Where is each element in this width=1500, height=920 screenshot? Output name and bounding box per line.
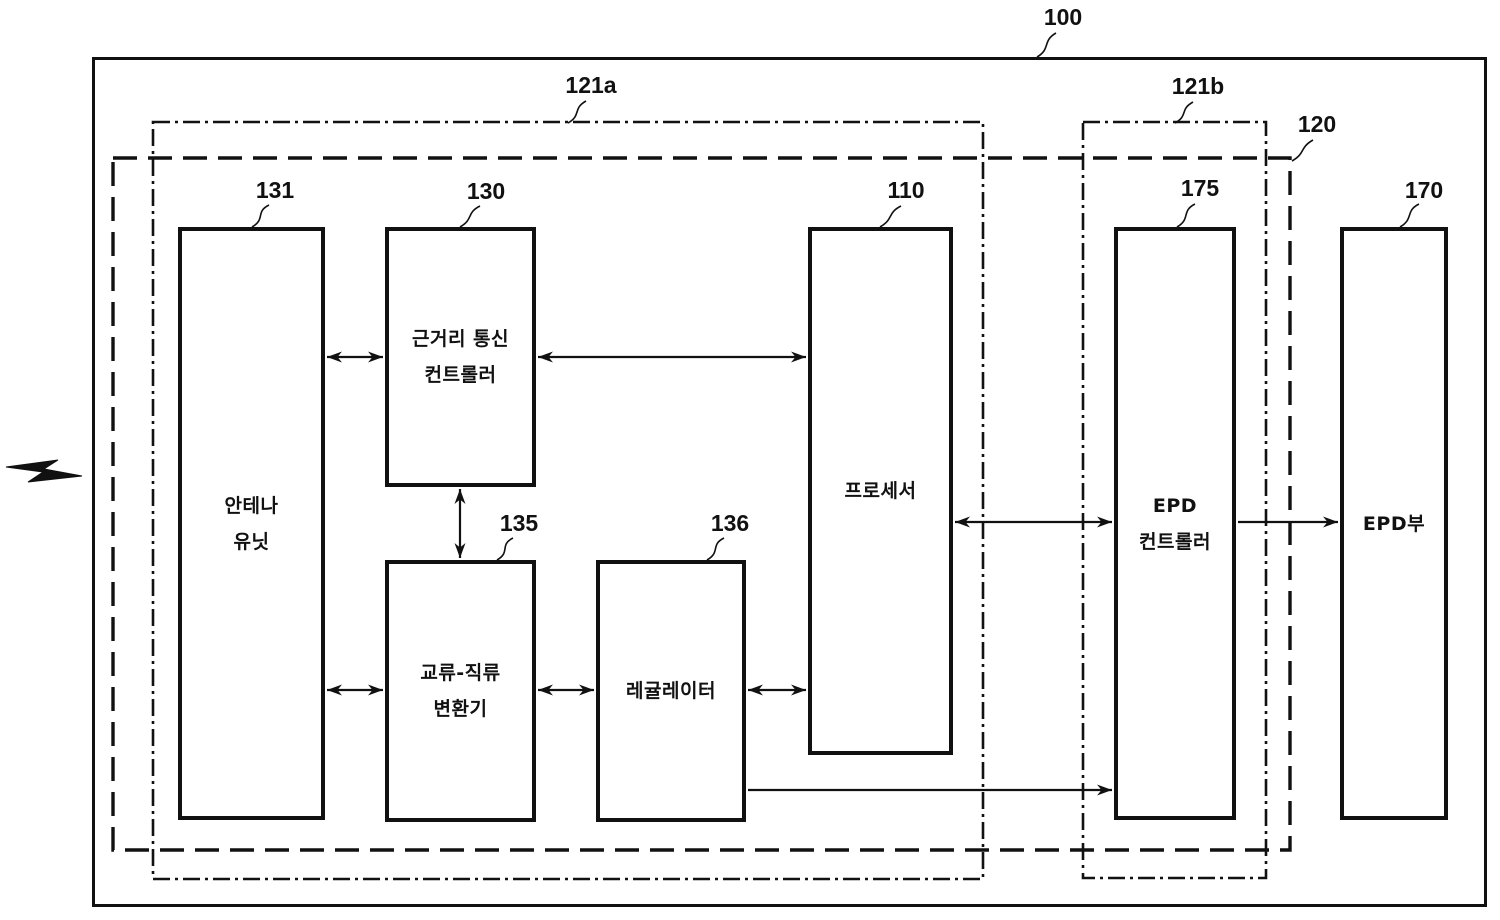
leader-100	[1037, 33, 1056, 57]
block-nfc-controller-label-line2: 컨트롤러	[425, 357, 497, 393]
patent-block-diagram: 100 121a 121b 120 131 130 110 175 170 13…	[0, 0, 1500, 920]
block-processor-label: 프로세서	[845, 473, 917, 509]
block-regulator-label: 레귤레이터	[626, 673, 716, 709]
block-nfc-controller-label-line1: 근거리 통신	[412, 321, 509, 357]
ref-label-170: 170	[1394, 177, 1454, 203]
ref-label-175: 175	[1170, 175, 1230, 201]
block-epd-controller-label-line1: EPD	[1153, 488, 1197, 524]
ref-label-100: 100	[1033, 4, 1093, 30]
block-epd-unit: EPD부	[1340, 227, 1448, 820]
ref-label-120: 120	[1287, 111, 1347, 137]
ref-label-121a: 121a	[561, 72, 621, 98]
block-processor: 프로세서	[808, 227, 953, 755]
block-regulator: 레귤레이터	[596, 560, 746, 822]
block-nfc-controller: 근거리 통신 컨트롤러	[385, 227, 536, 487]
ref-label-135: 135	[489, 510, 549, 536]
block-ac-dc-converter-label-line2: 변환기	[434, 691, 488, 727]
block-antenna-unit: 안테나 유닛	[178, 227, 325, 820]
ref-label-110: 110	[876, 177, 936, 203]
block-ac-dc-converter-label-line1: 교류-직류	[420, 655, 500, 691]
ref-label-131: 131	[245, 177, 305, 203]
ref-label-136: 136	[700, 510, 760, 536]
block-antenna-unit-label-line2: 유닛	[234, 524, 270, 560]
block-epd-unit-label: EPD부	[1363, 506, 1425, 542]
block-antenna-unit-label-line1: 안테나	[225, 488, 279, 524]
block-epd-controller: EPD 컨트롤러	[1114, 227, 1236, 820]
block-ac-dc-converter: 교류-직류 변환기	[385, 560, 536, 822]
block-epd-controller-label-line2: 컨트롤러	[1139, 524, 1211, 560]
wireless-signal-icon	[6, 460, 82, 482]
ref-label-130: 130	[456, 178, 516, 204]
ref-label-121b: 121b	[1168, 73, 1228, 99]
